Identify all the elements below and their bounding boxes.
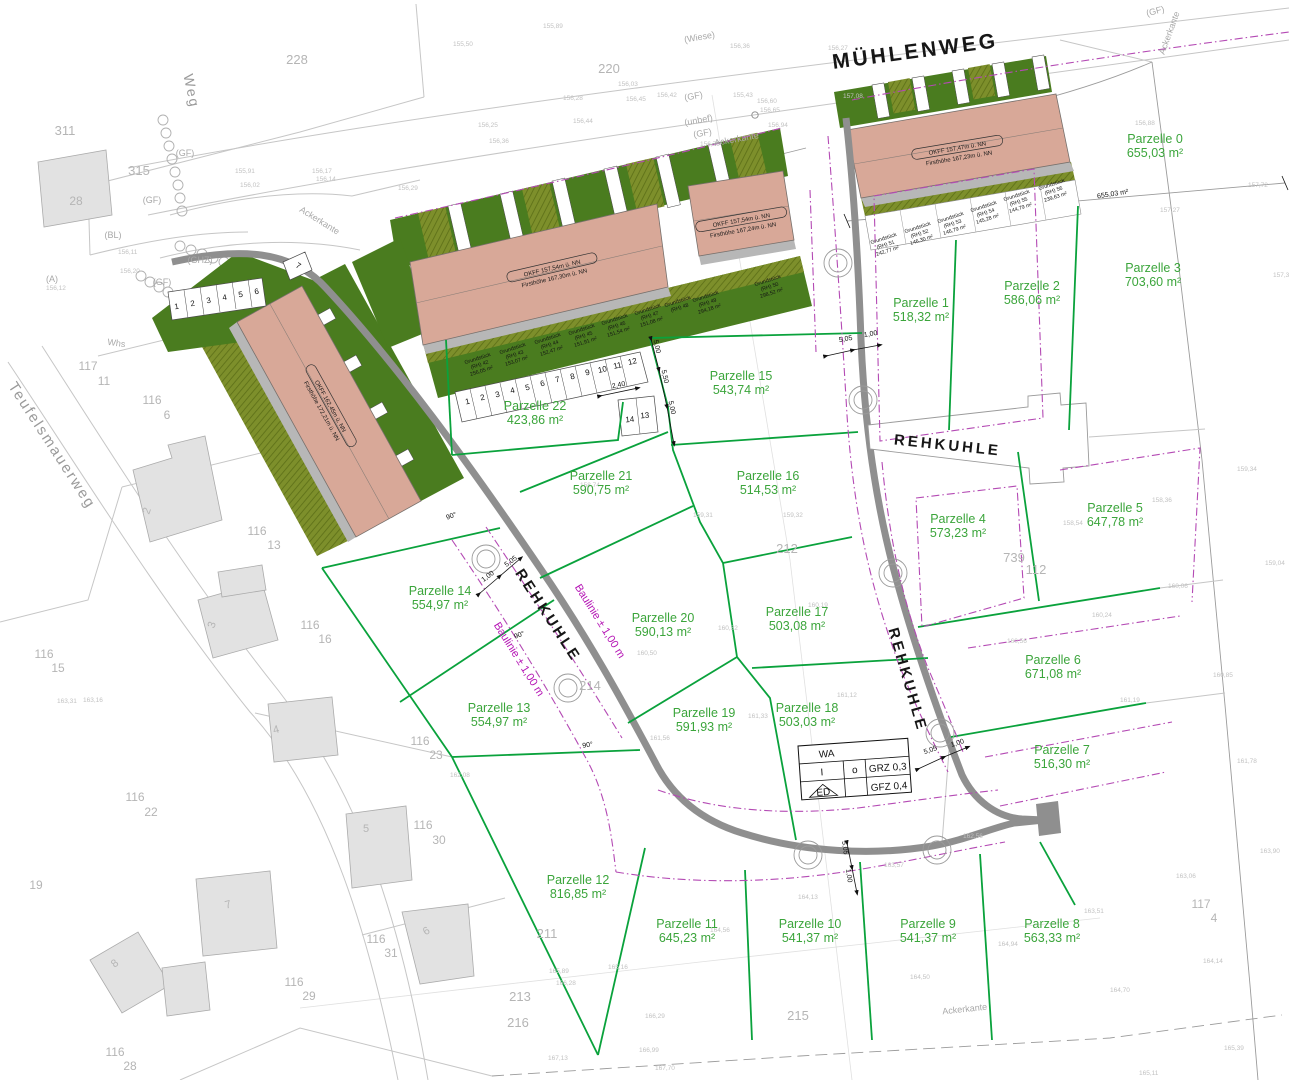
boundary-line [416,4,424,97]
svg-text:Parzelle 10: Parzelle 10 [779,917,842,931]
cadastral-number: 228 [286,52,308,67]
parcel-label: Parzelle 4 573,23 m² [930,512,986,540]
elevation-label: 156,94 [768,122,788,129]
cadastral-number: 117 [1191,897,1210,911]
misc-label: (GHZ) [188,255,213,265]
misc-label: Ackerkante [942,1002,988,1017]
cadastral-number: 315 [128,163,150,178]
elevation-label: 158,36 [1152,497,1172,504]
svg-text:655,03 m²: 655,03 m² [1127,146,1183,160]
baugrenze [968,616,1180,648]
boundary-line [1089,429,1205,437]
cadastral-number: 22 [144,805,158,819]
cadastral-number: 116 [34,647,53,661]
angle-label: 90° [445,510,458,521]
svg-text:Parzelle 3: Parzelle 3 [1125,261,1181,275]
elevation-label: 156,02 [240,182,260,189]
boundary-line [942,737,950,843]
elevation-label: 156,28 [563,95,583,102]
elevation-label: 157,08 [843,93,863,100]
dimension-label: 1,00 [844,869,853,884]
legend-wa: WA [818,748,835,760]
svg-text:514,53 m²: 514,53 m² [740,483,796,497]
misc-label: (GF) [693,127,713,140]
elevation-label: 156,36 [489,138,509,145]
parcel-label: Parzelle 11 645,23 m² [656,917,718,945]
svg-text:Parzelle 2: Parzelle 2 [1004,279,1060,293]
parking-number: 13 [640,411,650,421]
parcel-label: Parzelle 7 516,30 m² [1034,743,1090,771]
svg-text:Parzelle 6: Parzelle 6 [1025,653,1081,667]
cadastral-number: 116 [284,975,303,989]
elevation-label: 159,32 [783,512,803,519]
parcel-label: Parzelle 9 541,37 m² [900,917,956,945]
svg-text:Parzelle 22: Parzelle 22 [504,399,567,413]
elevation-label: 167,13 [548,1055,568,1062]
elevation-label: 162,56 [963,833,983,840]
angle-label: 90° [582,740,594,750]
elevation-label: 165,16 [608,964,628,971]
elevation-label: 164,13 [798,894,818,901]
svg-text:Parzelle 9: Parzelle 9 [900,917,956,931]
cadastral-number: 30 [432,833,446,847]
elevation-label: 155,89 [543,23,563,30]
elevation-label: 156,29 [398,185,418,192]
elevation-label: 156,88 [1135,120,1155,127]
elevation-label: 161,33 [748,713,768,720]
elevation-label: 160,06 [1168,583,1188,590]
cadastral-number: 11 [98,374,111,388]
dimension-label: 5,05 [838,335,853,344]
elevation-label: 160,85 [1213,672,1233,679]
svg-text:645,23 m²: 645,23 m² [659,931,715,945]
elevation-label: 164,70 [1110,987,1130,994]
parcel-line [1069,206,1078,430]
misc-label: Ackerkante [1157,10,1182,56]
parcel-label: Parzelle 12 816,85 m² [547,873,610,901]
house [346,806,412,888]
elevation-label: 163,57 [884,862,904,869]
elevation-label: 156,12 [46,285,66,292]
legend: WA I o GRZ 0,3 ED GFZ 0,4 [798,738,911,800]
svg-text:Parzelle 12: Parzelle 12 [547,873,610,887]
parcel-line [949,240,956,430]
elevation-label: 157,72 [1248,182,1268,189]
cadastral-number: 739 [1003,550,1025,565]
parcel-line [918,588,1160,627]
parcel-label: Parzelle 5 647,78 m² [1087,501,1143,529]
elevation-label: 156,03 [618,81,638,88]
parcel-label: Parzelle 10 541,37 m² [779,917,842,945]
svg-text:563,33 m²: 563,33 m² [1024,931,1080,945]
cadastral-number: 116 [142,393,161,407]
misc-label: (GF) [684,90,704,103]
svg-text:Parzelle 13: Parzelle 13 [468,701,531,715]
elevation-label: 164,94 [998,941,1018,948]
svg-text:591,93 m²: 591,93 m² [676,720,732,734]
parcel-label: Parzelle 6 671,08 m² [1025,653,1081,681]
svg-text:518,32 m²: 518,32 m² [893,310,949,324]
cadastral-number: 116 [125,790,144,804]
misc-label: (GF) [176,148,195,158]
elevation-label: 164,50 [910,974,930,981]
elevation-label: 166,29 [645,1013,665,1020]
house [402,904,474,984]
cadastral-number: 220 [598,61,620,76]
elevation-label: 166,28 [556,980,576,987]
elevation-label: 161,78 [1237,758,1257,765]
elevation-label: 156,60 [757,98,777,105]
baugrenze [810,190,816,352]
misc-label: (GF) [143,195,162,205]
parcel-label: Parzelle 2 586,06 m² [1004,279,1060,307]
elevation-label: 155,91 [235,168,255,175]
legend-ed: ED [816,787,831,799]
misc-label: Ackerkante [298,204,341,236]
parcel-line [452,750,640,757]
parcel-label: Parzelle 21 590,75 m² [570,469,633,497]
cadastral-number: 5 [363,823,369,835]
svg-text:Parzelle 5: Parzelle 5 [1087,501,1143,515]
elevation-label: 160,56 [1007,638,1027,645]
elevation-label: 160,50 [637,650,657,657]
boundary-line [180,1028,492,1080]
elevation-label: 161,19 [1120,697,1140,704]
boundary-line [1060,40,1152,62]
baugrenze [1000,772,1166,806]
parcel-label: Parzelle 15 543,74 m² [710,369,773,397]
parking-number: 14 [625,415,635,425]
plan-outer-boundary [1152,62,1258,1080]
svg-text:554,97 m²: 554,97 m² [471,715,527,729]
svg-text:586,06 m²: 586,06 m² [1004,293,1060,307]
elevation-label: 164,14 [1203,958,1223,965]
elevation-label: 155,50 [453,41,473,48]
parcel-label: Parzelle 1 518,32 m² [893,296,949,324]
cadastral-number: 28 [69,194,83,208]
svg-text:541,37 m²: 541,37 m² [900,931,956,945]
elevation-label: 156,17 [312,168,332,175]
elevation-label: 167,70 [655,1065,675,1072]
parcel-label: Parzelle 13 554,97 m² [468,701,531,729]
parcel-label: Parzelle 14 554,97 m² [409,584,472,612]
street-name: Teufelsmauerweg [4,379,99,512]
elevation-label: 157,38 [1273,272,1289,279]
svg-text:Parzelle 14: Parzelle 14 [409,584,472,598]
elevation-label: 163,31 [57,698,77,705]
parcel-label: Parzelle 17 503,08 m² [766,605,829,633]
house [38,150,112,227]
svg-text:541,37 m²: 541,37 m² [782,931,838,945]
elevation-label: 156,36 [730,43,750,50]
cadastral-number: 29 [302,989,316,1003]
svg-text:543,74 m²: 543,74 m² [713,383,769,397]
svg-text:573,23 m²: 573,23 m² [930,526,986,540]
elevation-label: 165,89 [549,968,569,975]
elevation-label: 160,32 [718,625,738,632]
ackerkante-dashed [492,1015,1282,1076]
parcel-line [671,432,858,445]
elevation-label: 157,27 [1160,207,1180,214]
elevation-label: 156,20 [120,268,140,275]
dimension-label: 1,00 [863,330,878,339]
parcel-line [745,870,752,1040]
elevation-label: 160,24 [1092,612,1112,619]
elevation-label: 158,54 [1063,520,1083,527]
road-stub [1036,801,1061,836]
svg-text:Parzelle 0: Parzelle 0 [1127,132,1183,146]
parcel-line [1040,842,1075,905]
elevation-label: 163,51 [1084,908,1104,915]
elevation-label: 156,25 [478,122,498,129]
svg-text:503,08 m²: 503,08 m² [769,619,825,633]
svg-text:516,30 m²: 516,30 m² [1034,757,1090,771]
parcel-line [540,506,693,578]
parcel-label: Parzelle 3 703,60 m² [1125,261,1181,289]
elevation-label: 163,06 [1176,873,1196,880]
parcel-label: Parzelle 20 590,13 m² [632,611,695,639]
elevation-label: 161,12 [837,692,857,699]
cadastral-number: 112 [1026,562,1047,577]
elevation-label: 162,08 [450,772,470,779]
svg-text:Parzelle 7: Parzelle 7 [1034,743,1090,757]
elevation-label: 163,90 [1260,848,1280,855]
elevation-label: 156,11 [118,249,138,256]
misc-label: Whs [107,337,127,349]
street-name: REHKUHLE [884,626,930,734]
cadastral-number: 15 [51,661,65,675]
parcel-label: Parzelle 19 591,93 m² [673,706,736,734]
cadastral-number: 117 [78,359,97,373]
svg-text:671,08 m²: 671,08 m² [1025,667,1081,681]
boundary-line [1146,693,1225,703]
boundary-line [170,180,420,215]
svg-text:423,86 m²: 423,86 m² [507,413,563,427]
cadastral-number: 116 [366,932,385,946]
elevation-label: 156,14 [316,176,336,183]
cadastral-number: 16 [318,632,332,646]
cadastral-number: 215 [787,1008,809,1023]
elevation-label: 159,34 [1237,466,1257,473]
cadastral-number: 212 [776,541,798,556]
cadastral-number: 23 [429,748,443,762]
cadastral-number: 4 [1211,911,1218,925]
cadastral-number: 211 [537,926,558,941]
elevation-label: 159,04 [1265,560,1285,567]
street-name: Weg [180,72,203,109]
cadastral-number: 19 [29,878,43,892]
cadastral-number: 116 [105,1045,124,1059]
svg-text:554,97 m²: 554,97 m² [412,598,468,612]
svg-text:Parzelle 20: Parzelle 20 [632,611,695,625]
cadastral-number: 6 [164,408,171,422]
cadastral-number: 116 [247,524,266,538]
shed [162,962,210,1016]
svg-text:Parzelle 15: Parzelle 15 [710,369,773,383]
dimension-label: 5,05 [923,745,938,756]
cadastral-number: 213 [509,989,531,1004]
elevation-label: 156,45 [626,96,646,103]
parcel-label: Parzelle 16 514,53 m² [737,469,800,497]
parcel-label: Parzelle 22 423,86 m² [504,399,567,427]
elevation-label: 163,16 [83,697,103,704]
misc-label: (Wiese) [683,29,715,44]
cadastral-number: 116 [413,818,432,832]
misc-label: (A) [46,274,58,284]
elevation-label: 165,39 [1224,1045,1244,1052]
dimension-label: 2,40 [611,381,626,391]
parcel-line [951,703,1146,737]
misc-label: (BL) [104,230,121,240]
svg-text:703,60 m²: 703,60 m² [1125,275,1181,289]
site-plan: WA I o GRZ 0,3 ED GFZ 0,4 Grundstück (RH… [0,0,1289,1080]
parcel-label: Parzelle 0 655,03 m² [1127,132,1183,160]
elevation-label: 156,44 [573,118,593,125]
cadastral-number: 216 [507,1015,529,1030]
house [196,871,277,956]
elevation-label: 156,42 [657,92,677,99]
svg-text:590,75 m²: 590,75 m² [573,483,629,497]
misc-label: (unbef) [684,113,714,128]
misc-label: (GF) [153,277,172,287]
elevation-label: 166,99 [639,1047,659,1054]
cadastral-number: 214 [579,678,601,693]
dimension-label: 655,03 m² [1097,188,1130,200]
parcel-line [860,862,872,1040]
cadastral-number: 311 [55,123,76,138]
site-plan-canvas: WA I o GRZ 0,3 ED GFZ 0,4 Grundstück (RH… [0,0,1289,1080]
svg-text:Parzelle 18: Parzelle 18 [776,701,839,715]
svg-text:Parzelle 8: Parzelle 8 [1024,917,1080,931]
svg-text:Parzelle 17: Parzelle 17 [766,605,829,619]
cadastral-number: 31 [384,946,398,960]
angle-label: 90° [513,629,526,640]
cadastral-number: 28 [123,1059,137,1073]
svg-text:Parzelle 21: Parzelle 21 [570,469,633,483]
elevation-label: 165,11 [1139,1070,1159,1077]
svg-text:Parzelle 16: Parzelle 16 [737,469,800,483]
elevation-label: 155,43 [733,92,753,99]
house [90,932,170,1013]
svg-text:647,78 m²: 647,78 m² [1087,515,1143,529]
parcel-label: Parzelle 18 503,03 m² [776,701,839,729]
svg-text:816,85 m²: 816,85 m² [550,887,606,901]
cadastral-number: 116 [410,734,429,748]
cadastral-number: 116 [300,618,319,632]
svg-text:Parzelle 1: Parzelle 1 [893,296,949,310]
svg-text:503,03 m²: 503,03 m² [779,715,835,729]
elevation-label: 161,56 [650,735,670,742]
cadastral-number: 13 [267,538,281,552]
elevation-label: 159,31 [693,512,713,519]
elevation-label: 156,65 [760,107,780,114]
svg-text:590,13 m²: 590,13 m² [635,625,691,639]
misc-label: (GF) [1145,4,1165,18]
parcel-label: Parzelle 8 563,33 m² [1024,917,1080,945]
svg-text:Parzelle 4: Parzelle 4 [930,512,986,526]
svg-text:Parzelle 11: Parzelle 11 [656,917,718,931]
svg-text:Parzelle 19: Parzelle 19 [673,706,736,720]
house [133,436,222,542]
